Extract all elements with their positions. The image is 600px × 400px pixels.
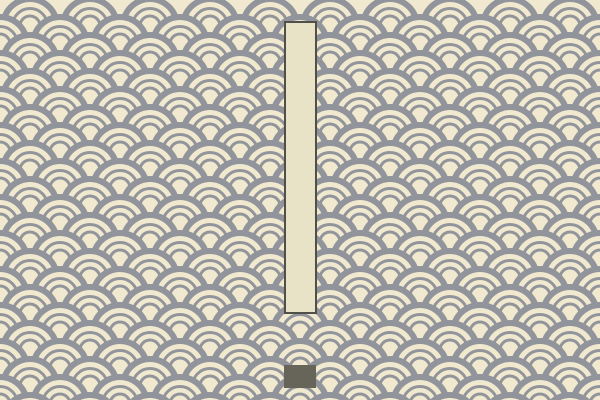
vertical-bar[interactable]: [284, 21, 317, 314]
game-stage: [0, 0, 600, 400]
dark-block[interactable]: [284, 365, 316, 388]
